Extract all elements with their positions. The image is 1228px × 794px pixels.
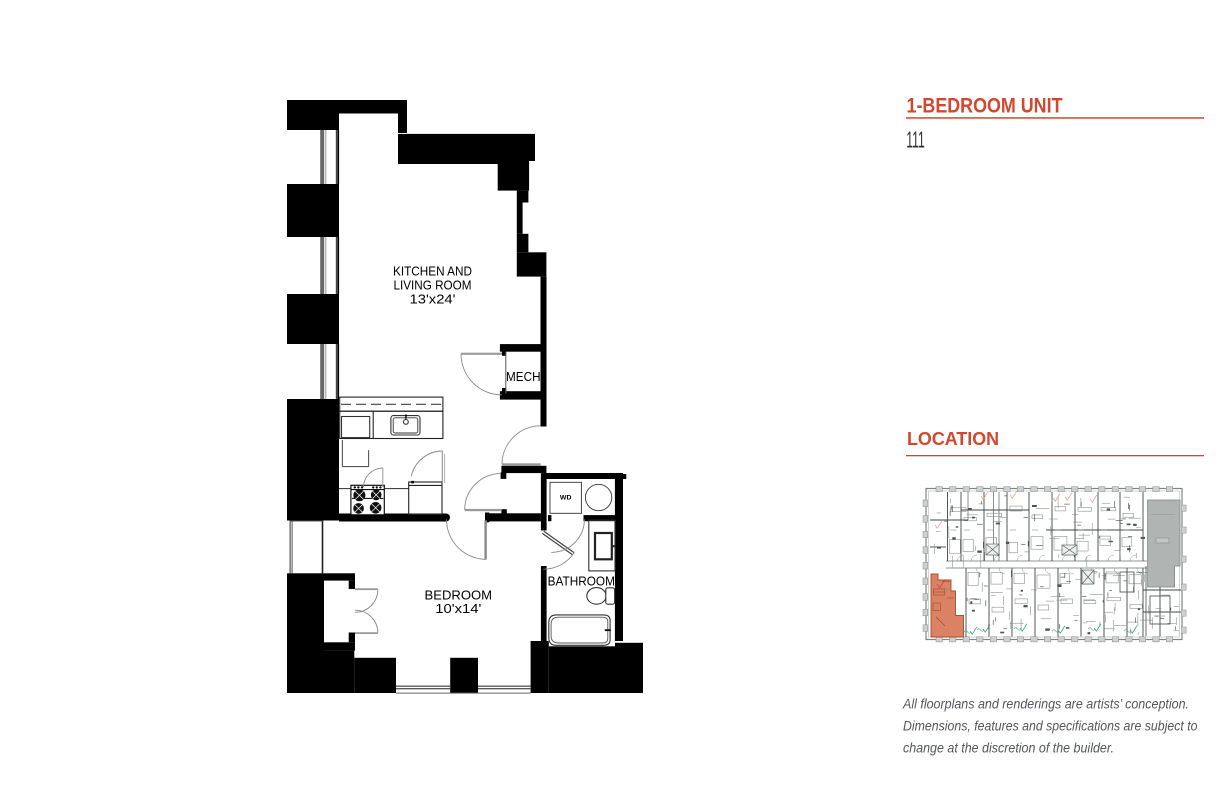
svg-text:10'x14': 10'x14': [435, 601, 481, 616]
svg-text:WD: WD: [560, 495, 572, 502]
svg-text:1-BEDROOM UNIT: 1-BEDROOM UNIT: [907, 94, 1063, 118]
svg-text:13'x24': 13'x24': [410, 292, 456, 307]
svg-text:Dimensions, features and speci: Dimensions, features and specifications …: [903, 718, 1198, 734]
svg-text:BATHROOM: BATHROOM: [548, 573, 615, 588]
svg-text:LIVING ROOM: LIVING ROOM: [394, 278, 472, 293]
svg-text:All floorplans and renderings: All floorplans and renderings are artist…: [902, 696, 1189, 712]
svg-text:MECH: MECH: [506, 369, 541, 384]
svg-text:change at the discretion of th: change at the discretion of the builder.: [903, 740, 1114, 756]
svg-text:111: 111: [906, 126, 925, 152]
svg-text:LOCATION: LOCATION: [907, 429, 999, 449]
svg-text:KITCHEN AND: KITCHEN AND: [393, 264, 472, 279]
